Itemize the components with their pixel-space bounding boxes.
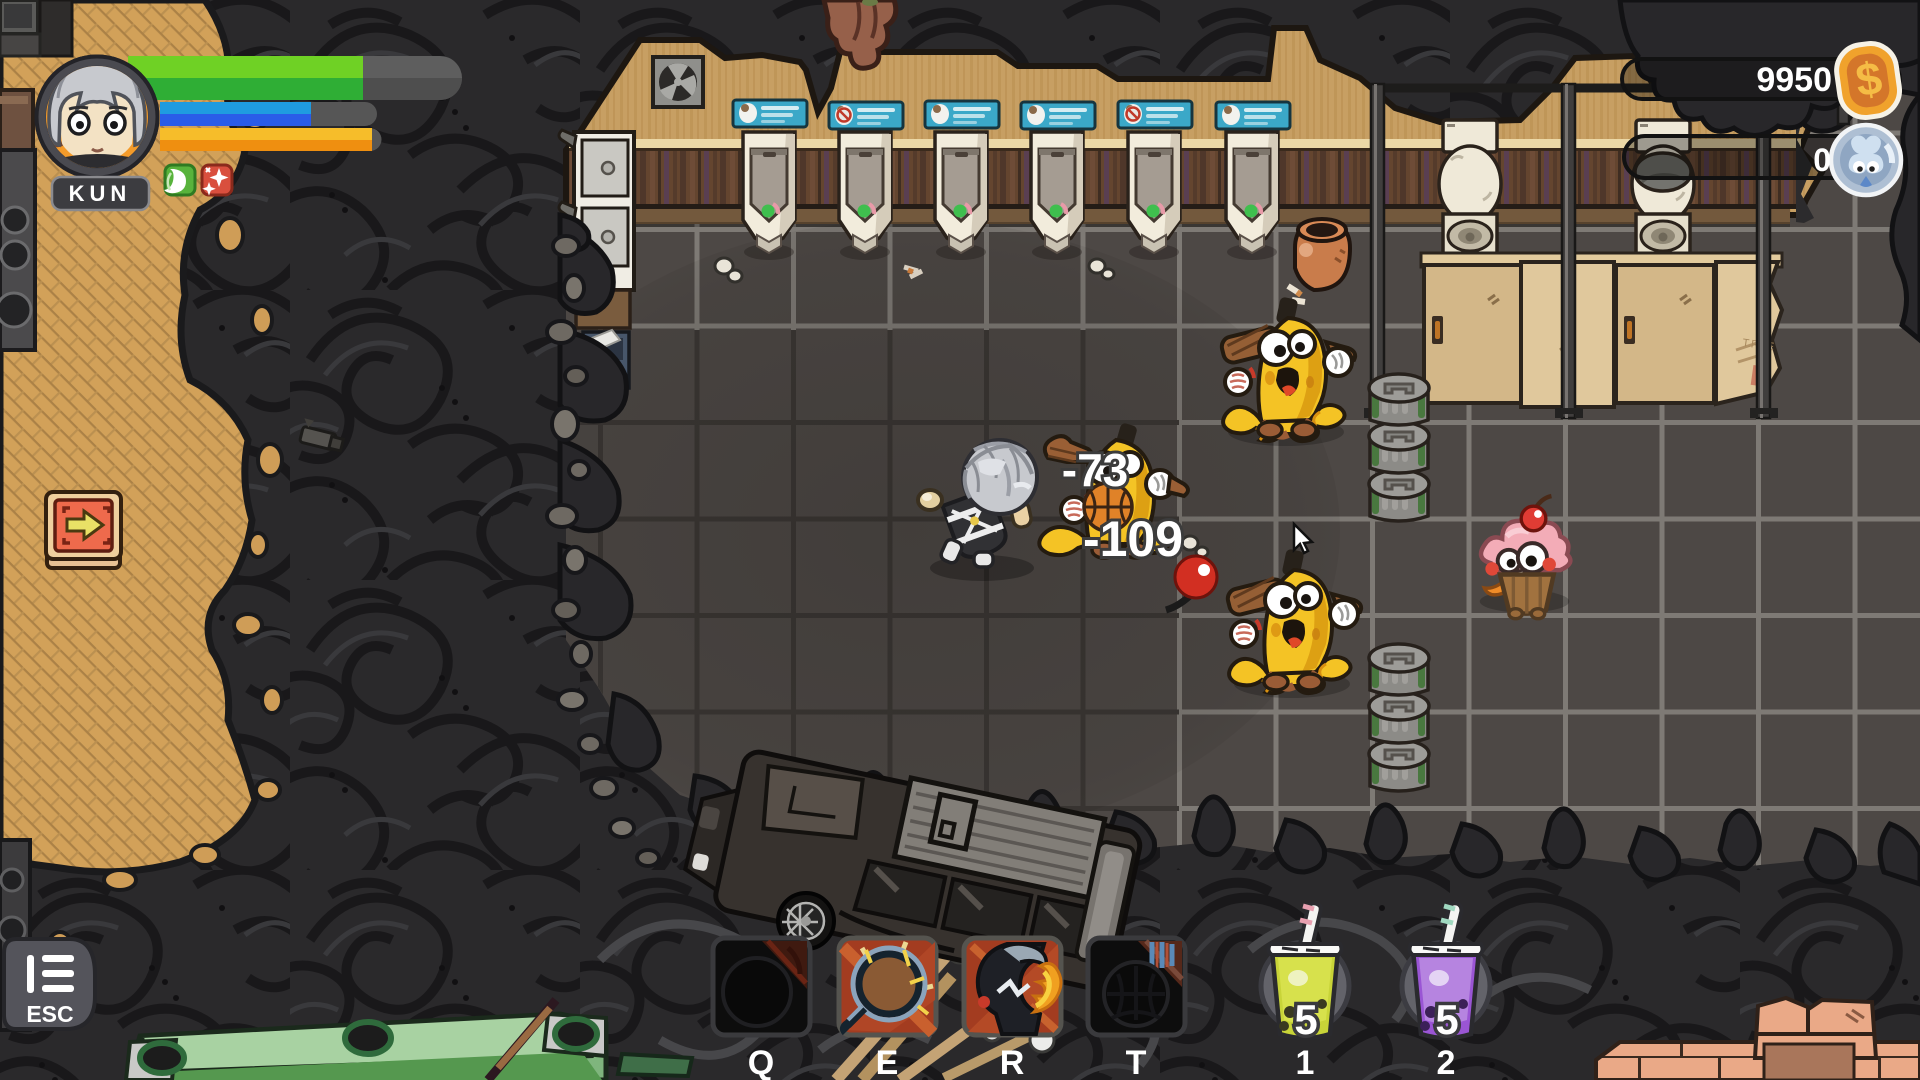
svg-text:T: T [1126, 1044, 1147, 1080]
svg-text:5: 5 [1435, 996, 1458, 1043]
svg-text:R: R [1000, 1044, 1025, 1080]
svg-text:2: 2 [1437, 1044, 1456, 1080]
svg-text:0: 0 [1813, 142, 1831, 178]
svg-text:9950: 9950 [1756, 61, 1832, 99]
svg-text:E: E [876, 1044, 899, 1080]
svg-text:ESC: ESC [26, 1001, 73, 1027]
svg-text:KUN: KUN [69, 181, 132, 206]
svg-text:1: 1 [1296, 1044, 1315, 1080]
svg-text:-109: -109 [1083, 511, 1183, 567]
svg-text:5: 5 [1294, 996, 1317, 1043]
svg-text:-73: -73 [1062, 444, 1128, 496]
svg-text:Q: Q [748, 1044, 774, 1080]
